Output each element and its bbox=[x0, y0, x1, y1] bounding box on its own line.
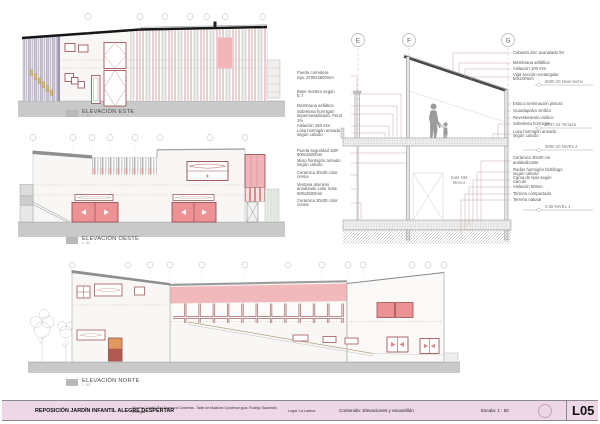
west-elevation-scale: 1 : 50 bbox=[82, 242, 139, 246]
section-note: Guardapolvo vinílico bbox=[513, 109, 585, 114]
north-elevation-title: ELEVACIÓN NORTE bbox=[82, 378, 140, 384]
credits-text: Alumno: Camila Paz Espinoza Contreras - … bbox=[132, 401, 282, 420]
west-double-door-right bbox=[172, 203, 216, 223]
north-grid-bubbles bbox=[69, 262, 447, 268]
east-elevation-drawing bbox=[14, 8, 290, 120]
roof-vent bbox=[214, 22, 217, 28]
north-elevation-label: ELEVACIÓN NORTE 1 : 50 bbox=[66, 378, 140, 388]
level-marker-roof: 6000.20 Nivel techo bbox=[545, 79, 583, 84]
section-note: Base mortero según E.T bbox=[297, 90, 349, 100]
trees bbox=[31, 309, 75, 362]
grid-bubble-e: E bbox=[356, 37, 360, 44]
north-arrow-icon bbox=[538, 404, 552, 418]
section-door-leaf bbox=[413, 173, 443, 220]
section-note: Aislación 100 mm bbox=[513, 67, 585, 72]
west-elevation-title: ELEVACIÓN OESTE bbox=[82, 236, 139, 242]
section-note: Sobrelosa hormigón impermeabilizado. Pen… bbox=[297, 110, 349, 124]
section-note: Membrana asfáltica bbox=[513, 61, 585, 66]
section-note: Aislación 50mm bbox=[513, 185, 585, 190]
person-silhouettes bbox=[429, 104, 448, 139]
north-entry-door bbox=[109, 338, 123, 361]
north-window-row bbox=[173, 304, 344, 324]
section-wall-g bbox=[505, 90, 508, 240]
section-ground-slab bbox=[343, 220, 511, 230]
level-marker-level2: 3000.20 NIVEL 2 bbox=[545, 144, 578, 149]
east-elevation-label: ELEVACIÓN ESTE 1 : 50 bbox=[66, 109, 134, 119]
section-note: Losa hormigón armada según calculo bbox=[297, 129, 349, 139]
section-note: Estuco terminación pintura bbox=[513, 102, 585, 107]
ground-strip bbox=[18, 222, 285, 237]
sheet-number: L05 bbox=[566, 401, 594, 420]
east-annex bbox=[267, 60, 280, 98]
west-double-door-left bbox=[72, 203, 118, 223]
north-elevation-drawing bbox=[14, 258, 474, 380]
section-sliding-door bbox=[354, 91, 362, 138]
section-note: Membrana asfáltica bbox=[297, 104, 349, 109]
west-upper-window bbox=[187, 162, 228, 181]
section-note: Puerta corredera mja. 3700x2500mm bbox=[297, 71, 349, 81]
section-note: Cubierta zinc acanalado 5V bbox=[513, 51, 585, 56]
north-right-step bbox=[444, 353, 458, 362]
west-grid-bubbles bbox=[30, 135, 248, 141]
legend-swatch bbox=[66, 237, 78, 244]
grid-bubble-f: F bbox=[407, 37, 411, 44]
section-note: Puerta seguridad 180º 900x2500mm bbox=[297, 149, 349, 159]
location-text: Lugar: La Ladera bbox=[288, 401, 315, 420]
legend-swatch bbox=[66, 110, 78, 117]
east-right-cladding bbox=[130, 29, 267, 102]
section-terrain bbox=[343, 230, 511, 244]
section-note: Ventana aluminio anodizado color mate 90… bbox=[297, 183, 349, 197]
legend-swatch bbox=[66, 379, 78, 386]
west-elevation-label: ELEVACIÓN OESTE 1 : 50 bbox=[66, 236, 139, 246]
section-note: Terreno natural bbox=[513, 198, 585, 203]
section-roof bbox=[404, 57, 507, 92]
ground-strip bbox=[28, 362, 460, 373]
section-note: Cerámico 30x30 cm antideslizante bbox=[513, 156, 585, 166]
level-marker-level1: 0.00 NIVEL 1 bbox=[545, 204, 570, 209]
north-elevation-scale: 1 : 50 bbox=[82, 384, 140, 388]
ground-strip bbox=[18, 101, 285, 117]
content-text: Contenido: Elevaciones y escantillón bbox=[339, 401, 414, 420]
section-note: Muro hormigón armado según calculo bbox=[297, 159, 349, 169]
level-marker-terrace: 3747.41 Terraza bbox=[545, 122, 576, 127]
east-grid-bubbles bbox=[85, 14, 266, 20]
west-left-structure bbox=[20, 185, 33, 223]
section-note: Ceramica 30x30 color crema bbox=[297, 171, 349, 181]
section-grid-bubbles bbox=[352, 34, 515, 47]
section-note: Ceramica 30x30 color crema bbox=[297, 199, 349, 209]
section-note: Revestimiento vinílico bbox=[513, 116, 585, 121]
section-note: Losa hormigón armado según calculo bbox=[513, 130, 585, 140]
section-detail: E F G bbox=[295, 28, 600, 258]
east-elevation-scale: 1 : 50 bbox=[82, 115, 134, 119]
scale-text: Escala: 1 : 50 bbox=[481, 401, 509, 420]
section-note: Terreno compactado bbox=[513, 192, 585, 197]
north-salmon-band bbox=[170, 284, 347, 304]
room-label: Sala NM Menor bbox=[445, 175, 473, 186]
east-left-cladding bbox=[23, 36, 60, 101]
section-level2-slab bbox=[343, 138, 508, 146]
west-right-panels bbox=[245, 155, 279, 223]
grid-bubble-g: G bbox=[506, 37, 511, 44]
title-block: REPOSICIÓN JARDÍN INFANTIL ALEGRE DESPER… bbox=[2, 400, 598, 421]
section-wall-f bbox=[406, 57, 409, 240]
architecture-sheet: ELEVACIÓN ESTE 1 : 50 bbox=[0, 0, 600, 424]
west-elevation-drawing bbox=[14, 130, 290, 240]
